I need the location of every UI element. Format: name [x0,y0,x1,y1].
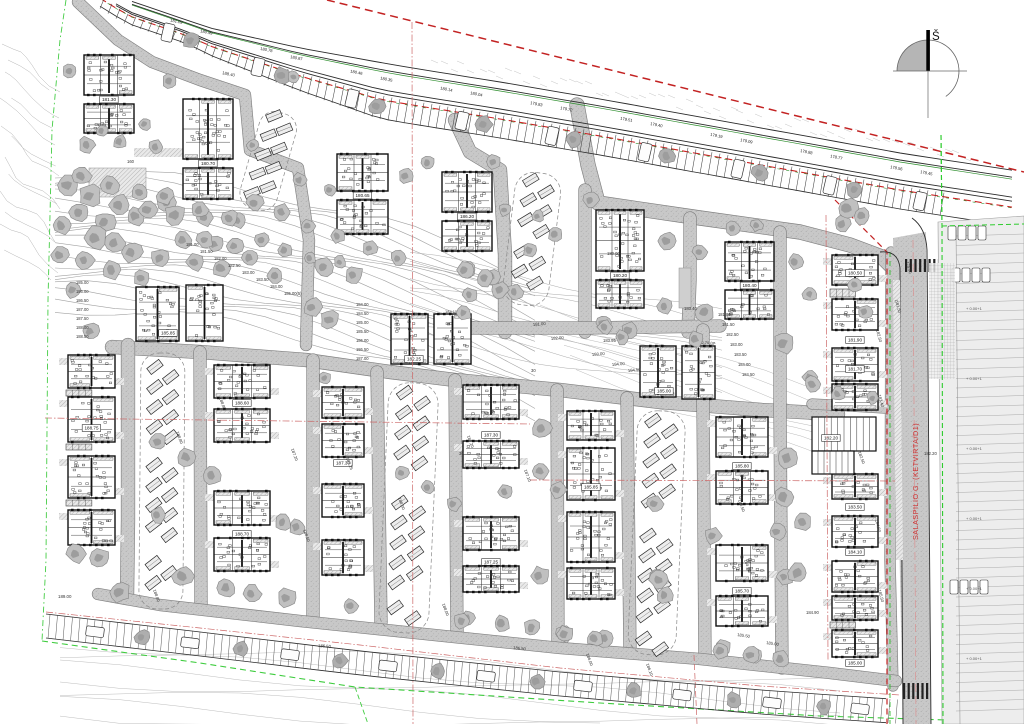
svg-text:187.25: 187.25 [484,560,498,565]
svg-text:184.50: 184.50 [356,311,369,316]
svg-text:181.50: 181.50 [722,322,735,327]
svg-text:30: 30 [459,451,464,456]
svg-text:181.30: 181.30 [102,97,116,102]
svg-text:+ 0.00+1: + 0.00+1 [966,516,983,521]
svg-text:+ 0.00+1: + 0.00+1 [966,306,983,311]
svg-text:181.00: 181.00 [186,242,199,247]
svg-text:188.00: 188.00 [76,325,89,330]
svg-text:182.50: 182.50 [228,263,241,268]
svg-text:185.85: 185.85 [161,331,175,336]
svg-text:185.85: 185.85 [584,485,598,490]
svg-text:185.00: 185.00 [356,320,369,325]
svg-text:183.00: 183.00 [242,270,255,275]
svg-text:+ 0.00+1: + 0.00+1 [966,446,983,451]
svg-text:186.00: 186.00 [76,289,89,294]
svg-text:186.50: 186.50 [356,347,369,352]
svg-text:185.80: 185.80 [735,464,749,469]
svg-text:188.60: 188.60 [235,401,249,406]
svg-text:184.10: 184.10 [848,550,862,555]
svg-text:186.50: 186.50 [76,298,89,303]
svg-text:183.95: 183.95 [603,338,616,343]
svg-text:183.50: 183.50 [256,277,269,282]
svg-text:180.70: 180.70 [201,161,215,166]
svg-text:187.30: 187.30 [484,433,498,438]
svg-text:180.20: 180.20 [613,273,627,278]
svg-text:181.50: 181.50 [200,249,213,254]
svg-text:184.90: 184.90 [806,610,819,615]
svg-text:180.65: 180.65 [355,193,369,198]
svg-text:180.50: 180.50 [848,271,862,276]
svg-text:184.00: 184.00 [738,362,751,367]
svg-text:181.90: 181.90 [848,338,862,343]
svg-text:+ 0.00+1: + 0.00+1 [966,586,983,591]
svg-text:185.70: 185.70 [735,589,749,594]
svg-text:185.00(5): 185.00(5) [284,291,302,296]
svg-text:183.40: 183.40 [684,306,697,311]
svg-text:180.00: 180.00 [607,251,620,256]
svg-text:160: 160 [127,159,135,164]
svg-text:181.70: 181.70 [848,367,862,372]
svg-text:189.00: 189.00 [58,594,72,599]
svg-text:187.00: 187.00 [76,307,89,312]
svg-text:185.00: 185.00 [848,661,862,666]
svg-text:186.50: 186.50 [318,643,332,649]
svg-text:186.00: 186.00 [356,338,369,343]
svg-text:184.00: 184.00 [270,284,283,289]
svg-text:188.70: 188.70 [235,532,249,537]
svg-text:182.25: 182.25 [407,357,421,362]
svg-text:187.50: 187.50 [76,316,89,321]
svg-text:182.50: 182.50 [726,332,739,337]
svg-text:188.75: 188.75 [84,426,98,431]
svg-text:+ 0.00+1: + 0.00+1 [966,376,983,381]
svg-text:Š: Š [932,30,940,43]
svg-text:30: 30 [531,368,536,373]
svg-text:185.50: 185.50 [356,329,369,334]
svg-text:182.20: 182.20 [924,451,937,456]
svg-text:+ 0.00+1: + 0.00+1 [966,656,983,661]
svg-text:SALASPILIO G. (KETVIRTA/D1): SALASPILIO G. (KETVIRTA/D1) [911,423,920,540]
svg-text:183.00: 183.00 [730,342,743,347]
svg-text:184.50: 184.50 [742,372,755,377]
svg-text:187.00: 187.00 [356,356,369,361]
svg-text:180.40: 180.40 [742,283,756,288]
svg-text:185.00: 185.00 [76,280,89,285]
svg-text:183.50: 183.50 [848,505,862,510]
svg-text:181.00: 181.00 [718,312,731,317]
svg-text:188.50: 188.50 [76,334,89,339]
svg-text:182.00: 182.00 [214,256,227,261]
svg-text:186.20: 186.20 [460,214,474,219]
svg-text:183.50: 183.50 [734,352,747,357]
svg-text:184.00: 184.00 [356,302,369,307]
svg-text:185.00: 185.00 [657,389,671,394]
svg-text:182.20: 182.20 [824,436,838,441]
